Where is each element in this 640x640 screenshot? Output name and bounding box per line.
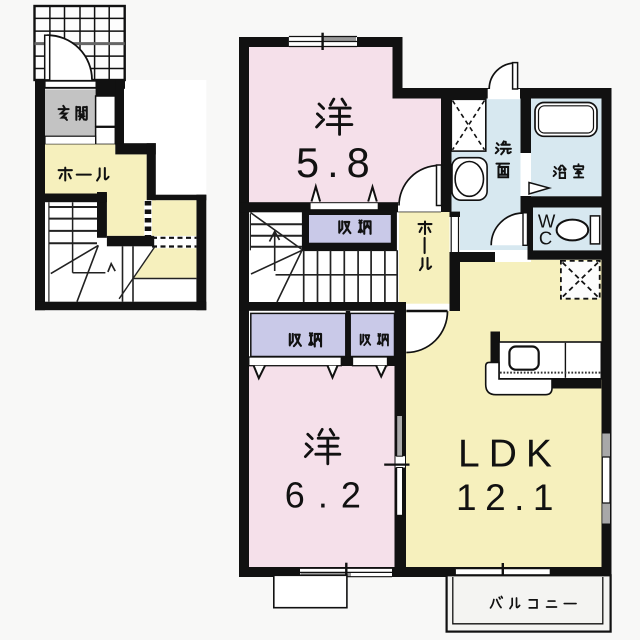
svg-text:12.1: 12.1 (456, 477, 562, 518)
svg-text:LDK: LDK (458, 432, 561, 475)
svg-text:C: C (539, 228, 552, 249)
svg-text:5.8: 5.8 (296, 139, 378, 186)
svg-text:6.2: 6.2 (285, 475, 374, 516)
